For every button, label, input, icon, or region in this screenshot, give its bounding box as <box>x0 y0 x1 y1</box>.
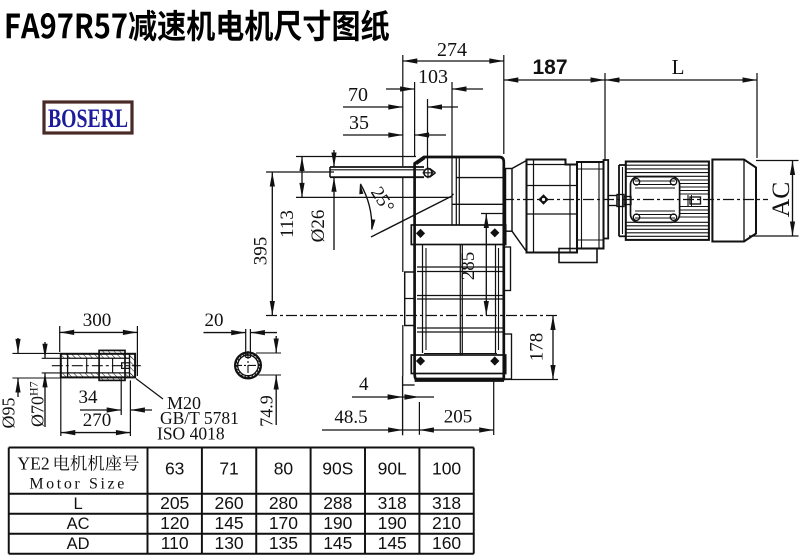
svg-text:130: 130 <box>214 533 243 553</box>
svg-text:178: 178 <box>527 333 548 362</box>
svg-text:113: 113 <box>277 210 298 238</box>
svg-text:205: 205 <box>444 407 473 428</box>
svg-text:63: 63 <box>165 459 184 479</box>
svg-text:205: 205 <box>160 493 189 513</box>
svg-text:34: 34 <box>79 387 99 408</box>
svg-text:285: 285 <box>458 252 479 281</box>
svg-text:103: 103 <box>418 66 448 88</box>
svg-text:135: 135 <box>269 533 298 553</box>
svg-text:145: 145 <box>214 513 243 533</box>
svg-text:260: 260 <box>214 493 243 513</box>
svg-text:4: 4 <box>359 374 369 395</box>
svg-text:L: L <box>672 55 685 79</box>
svg-text:80: 80 <box>274 459 294 479</box>
svg-text:160: 160 <box>432 533 461 553</box>
svg-text:145: 145 <box>378 533 407 553</box>
svg-text:210: 210 <box>432 513 461 533</box>
svg-text:187: 187 <box>532 56 567 79</box>
svg-text:Ø95: Ø95 <box>0 398 19 429</box>
svg-text:270: 270 <box>83 410 112 431</box>
svg-text:318: 318 <box>378 493 407 513</box>
svg-text:71: 71 <box>219 459 238 479</box>
svg-text:318: 318 <box>432 493 461 513</box>
svg-text:Ø26: Ø26 <box>308 210 329 243</box>
svg-text:190: 190 <box>378 513 407 533</box>
svg-text:48.5: 48.5 <box>334 407 367 428</box>
svg-text:170: 170 <box>269 513 298 533</box>
svg-text:70: 70 <box>348 84 368 106</box>
svg-text:74.9: 74.9 <box>257 395 277 427</box>
svg-text:AC: AC <box>766 182 795 217</box>
svg-text:L: L <box>74 495 83 513</box>
svg-text:110: 110 <box>161 533 189 553</box>
svg-text:90L: 90L <box>378 459 407 479</box>
svg-text:274: 274 <box>437 39 467 61</box>
svg-text:ISO 4018: ISO 4018 <box>157 424 225 444</box>
svg-text:120: 120 <box>160 513 189 533</box>
svg-text:35: 35 <box>349 112 369 134</box>
svg-text:Motor Size: Motor Size <box>29 476 127 493</box>
svg-text:YE2: YE2 <box>18 454 50 474</box>
svg-text:288: 288 <box>323 493 352 513</box>
svg-text:BOSERL: BOSERL <box>48 104 128 133</box>
svg-text:AD: AD <box>67 535 90 553</box>
svg-text:20: 20 <box>205 310 224 331</box>
svg-text:395: 395 <box>251 237 272 266</box>
svg-text:90S: 90S <box>322 459 353 479</box>
svg-text:AC: AC <box>67 515 90 533</box>
svg-text:280: 280 <box>269 493 298 513</box>
svg-text:145: 145 <box>323 533 352 553</box>
svg-text:300: 300 <box>83 310 112 331</box>
svg-text:190: 190 <box>323 513 352 533</box>
svg-text:100: 100 <box>432 459 461 479</box>
